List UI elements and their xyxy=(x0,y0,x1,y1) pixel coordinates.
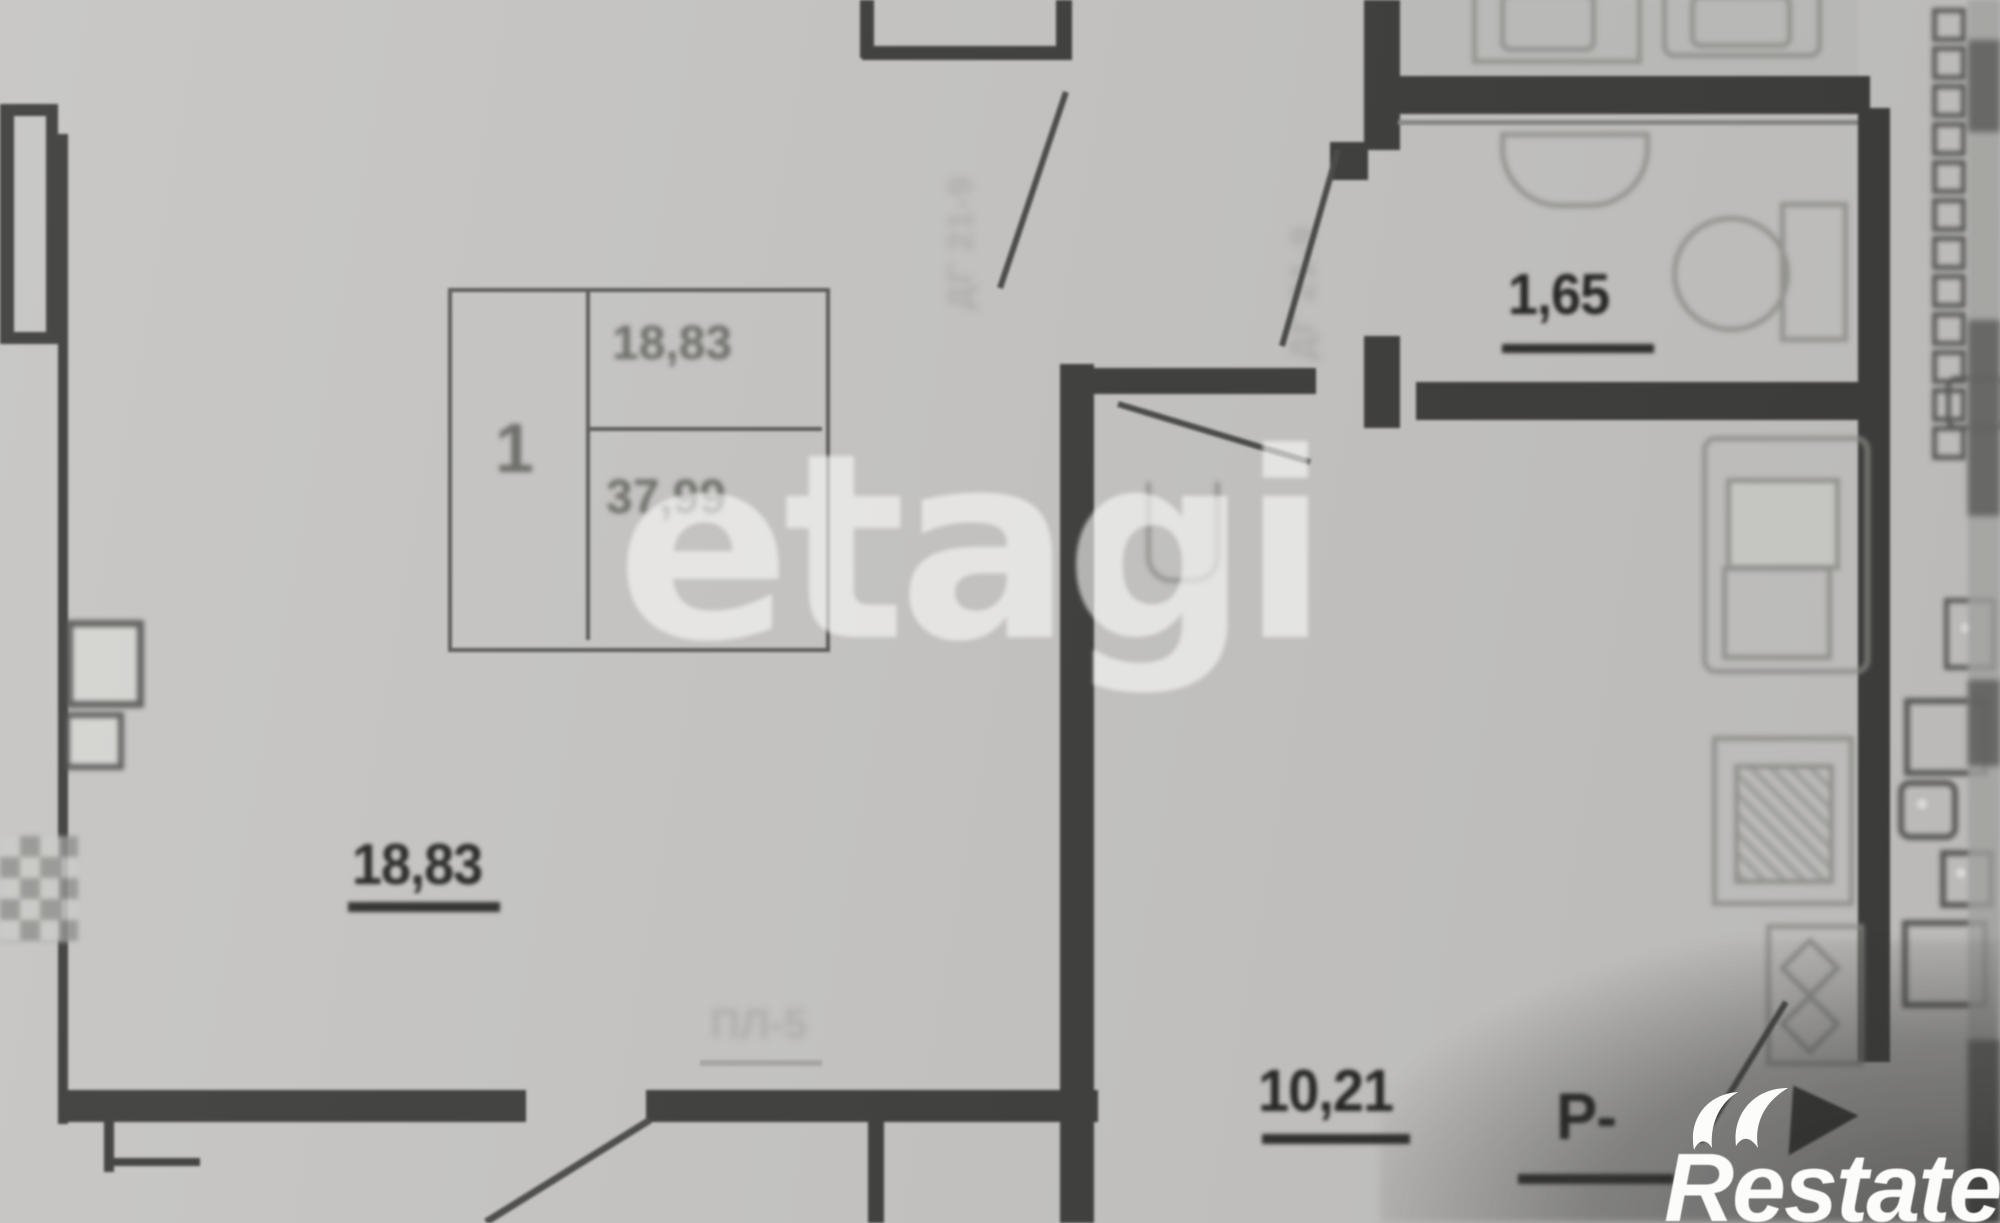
restate-logo-text: Restate xyxy=(1664,1132,2000,1223)
floorplan-photo: 1 18,83 37,99 xyxy=(0,0,2000,1223)
etagi-watermark: etagi xyxy=(616,398,1356,698)
